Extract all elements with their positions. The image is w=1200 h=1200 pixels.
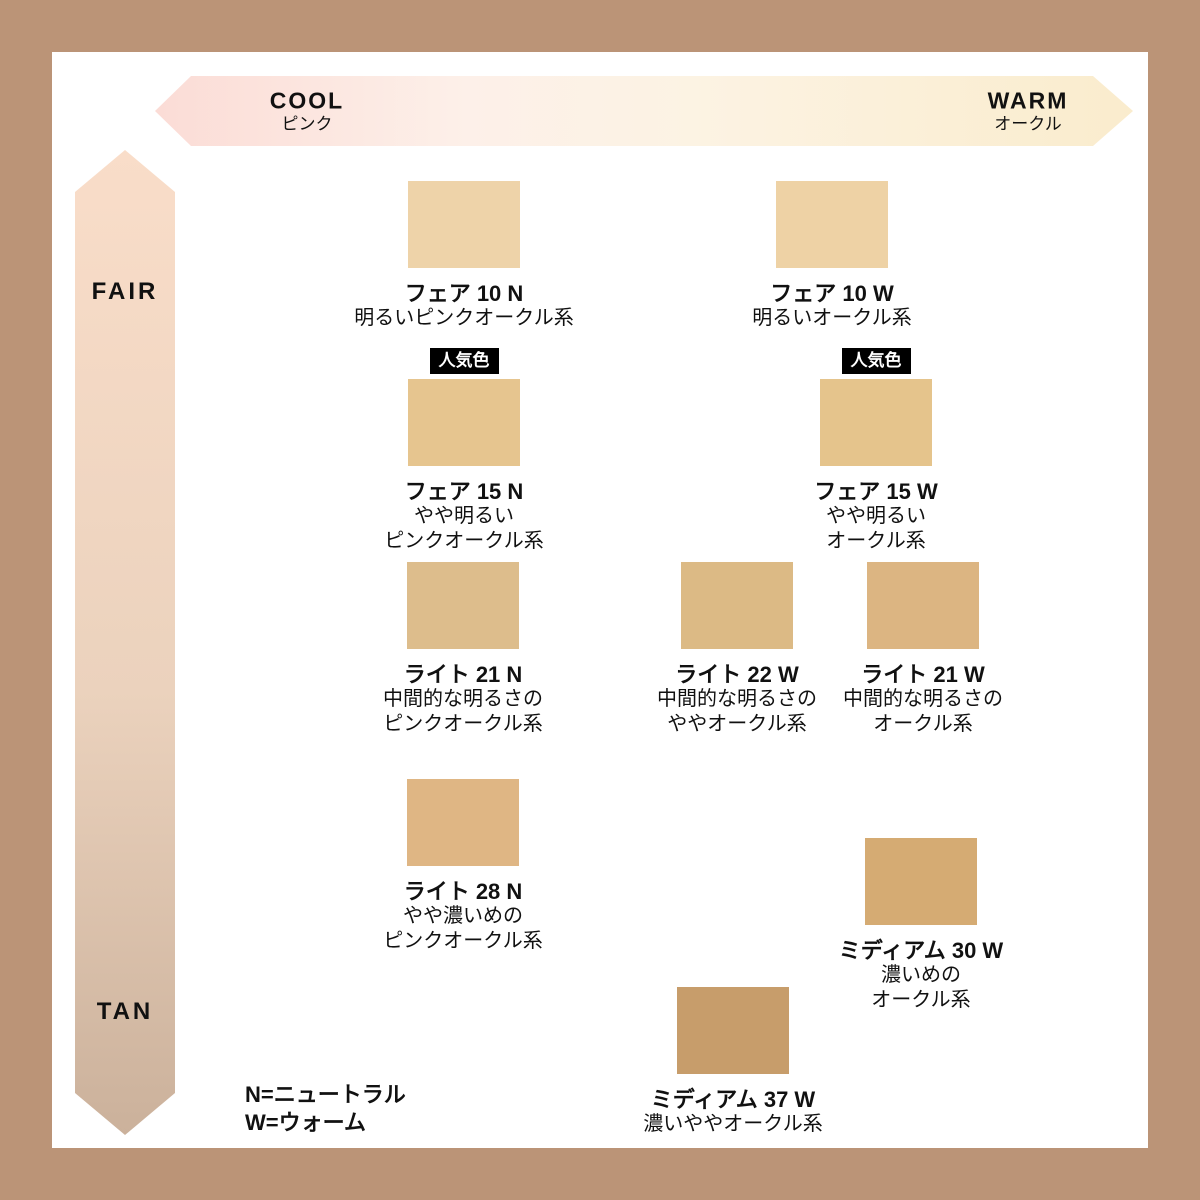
warm-sublabel: オークル [988, 115, 1069, 135]
shade-swatch [820, 379, 932, 466]
shade-name: フェア 15 W [814, 479, 937, 504]
warm-label: WARM [988, 88, 1069, 114]
shade-name: ミディアム 37 W [643, 1087, 822, 1112]
shade-description: ピンクオークル系 [384, 529, 543, 554]
shade-card-light-21w: ライト 21 W 中間的な明るさの オークル系 [783, 562, 1063, 737]
shade-swatch [867, 562, 979, 649]
shade-description: 中間的な明るさの [843, 687, 1003, 712]
chart-canvas: COOL ピンク WARM オークル FAIR TAN フェア 10 N 明るい… [52, 52, 1148, 1148]
shade-swatch [865, 838, 977, 925]
depth-axis-arrow: FAIR TAN [75, 150, 175, 1135]
shade-chart-page: { "frame_color": "#bb9477", "axes": { "h… [0, 0, 1200, 1200]
shade-name: ライト 21 N [383, 662, 543, 687]
popular-badge: 人気色 [842, 348, 911, 374]
shade-card-fair-15w: 人気色 フェア 15 W やや明るい オークル系 [736, 348, 1016, 554]
tan-label: TAN [75, 998, 175, 1026]
shade-card-light-21n: ライト 21 N 中間的な明るさの ピンクオークル系 [323, 562, 603, 737]
shade-name: フェア 10 W [752, 281, 911, 306]
shade-card-medium-37w: ミディアム 37 W 濃いややオークル系 [593, 987, 873, 1137]
shade-name: フェア 15 N [384, 479, 543, 504]
legend-neutral: N=ニュートラル [245, 1081, 406, 1109]
shade-description: ピンクオークル系 [383, 712, 543, 737]
popular-badge: 人気色 [430, 348, 499, 374]
shade-card-fair-10w: フェア 10 W 明るいオークル系 [692, 181, 972, 331]
shade-description: 濃いややオークル系 [643, 1112, 822, 1137]
shade-name: ライト 21 W [843, 662, 1003, 687]
shade-description: 明るいピンクオークル系 [354, 306, 573, 331]
shade-name: フェア 10 N [354, 281, 573, 306]
shade-description: やや明るい [814, 504, 937, 529]
legend-warm: W=ウォーム [245, 1109, 406, 1137]
shade-card-fair-15n: 人気色 フェア 15 N やや明るい ピンクオークル系 [324, 348, 604, 554]
cool-label: COOL [270, 88, 344, 114]
shade-description: オークル系 [814, 529, 937, 554]
shade-swatch [776, 181, 888, 268]
shade-swatch [408, 379, 520, 466]
warm-axis-label: WARM オークル [988, 88, 1069, 135]
shade-swatch [681, 562, 793, 649]
fair-label: FAIR [75, 278, 175, 306]
shade-description: ピンクオークル系 [383, 929, 542, 954]
shade-card-light-28n: ライト 28 N やや濃いめの ピンクオークル系 [323, 779, 603, 954]
shade-description: やや濃いめの [383, 904, 542, 929]
cool-axis-label: COOL ピンク [270, 88, 344, 135]
shade-swatch [407, 779, 519, 866]
shade-swatch [408, 181, 520, 268]
shade-description: 明るいオークル系 [752, 306, 911, 331]
undertone-axis-arrow: COOL ピンク WARM オークル [155, 76, 1133, 146]
shade-description: オークル系 [843, 712, 1003, 737]
shade-swatch [677, 987, 789, 1074]
shade-description: 濃いめの [839, 963, 1003, 988]
shade-card-fair-10n: フェア 10 N 明るいピンクオークル系 [324, 181, 604, 331]
shade-description: 中間的な明るさの [383, 687, 543, 712]
shade-name: ライト 28 N [383, 879, 542, 904]
cool-sublabel: ピンク [270, 115, 344, 135]
tone-legend: N=ニュートラル W=ウォーム [245, 1081, 406, 1137]
shade-name: ミディアム 30 W [839, 938, 1003, 963]
shade-swatch [407, 562, 519, 649]
shade-description: やや明るい [384, 504, 543, 529]
